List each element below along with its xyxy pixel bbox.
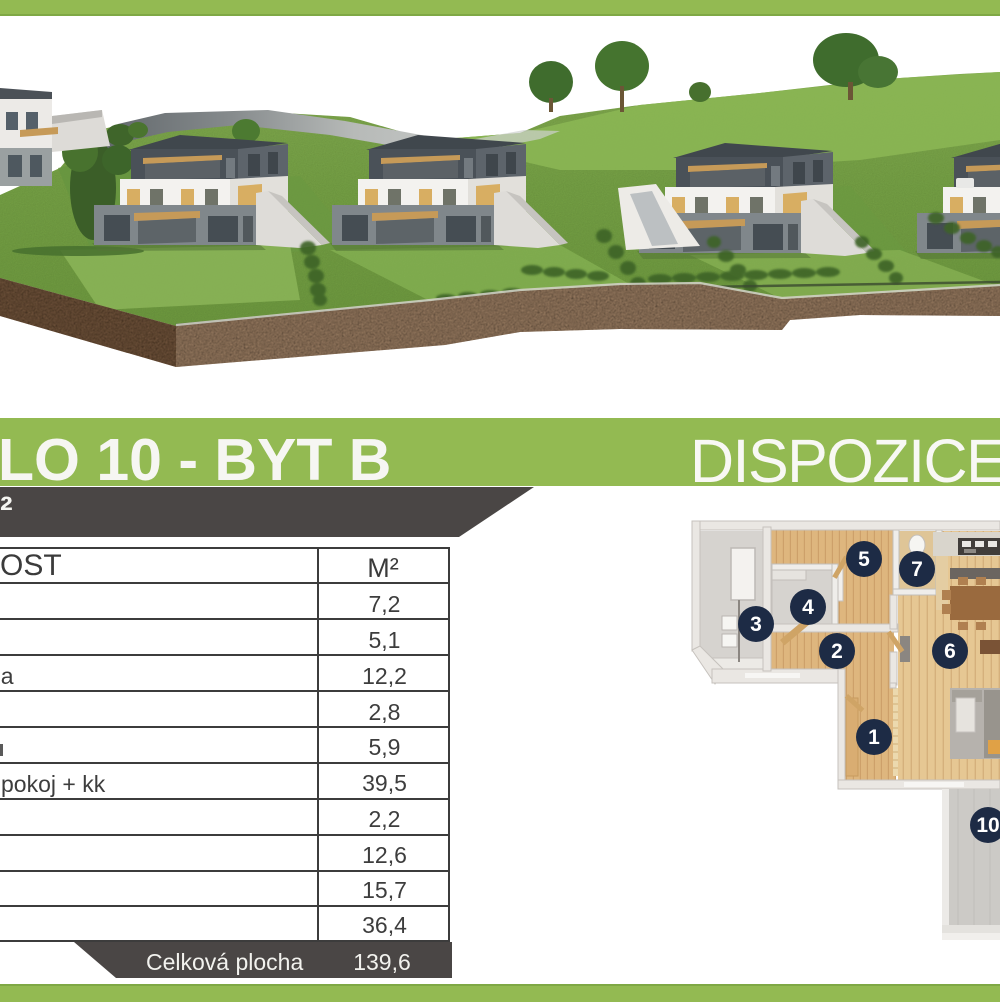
svg-text:10: 10 xyxy=(976,814,999,837)
svg-text:5: 5 xyxy=(858,548,870,571)
svg-text:6: 6 xyxy=(944,640,956,663)
svg-text:3: 3 xyxy=(750,613,762,636)
svg-text:7: 7 xyxy=(911,558,923,581)
svg-text:1: 1 xyxy=(868,726,880,749)
svg-text:2: 2 xyxy=(831,640,843,663)
svg-text:4: 4 xyxy=(802,596,814,619)
